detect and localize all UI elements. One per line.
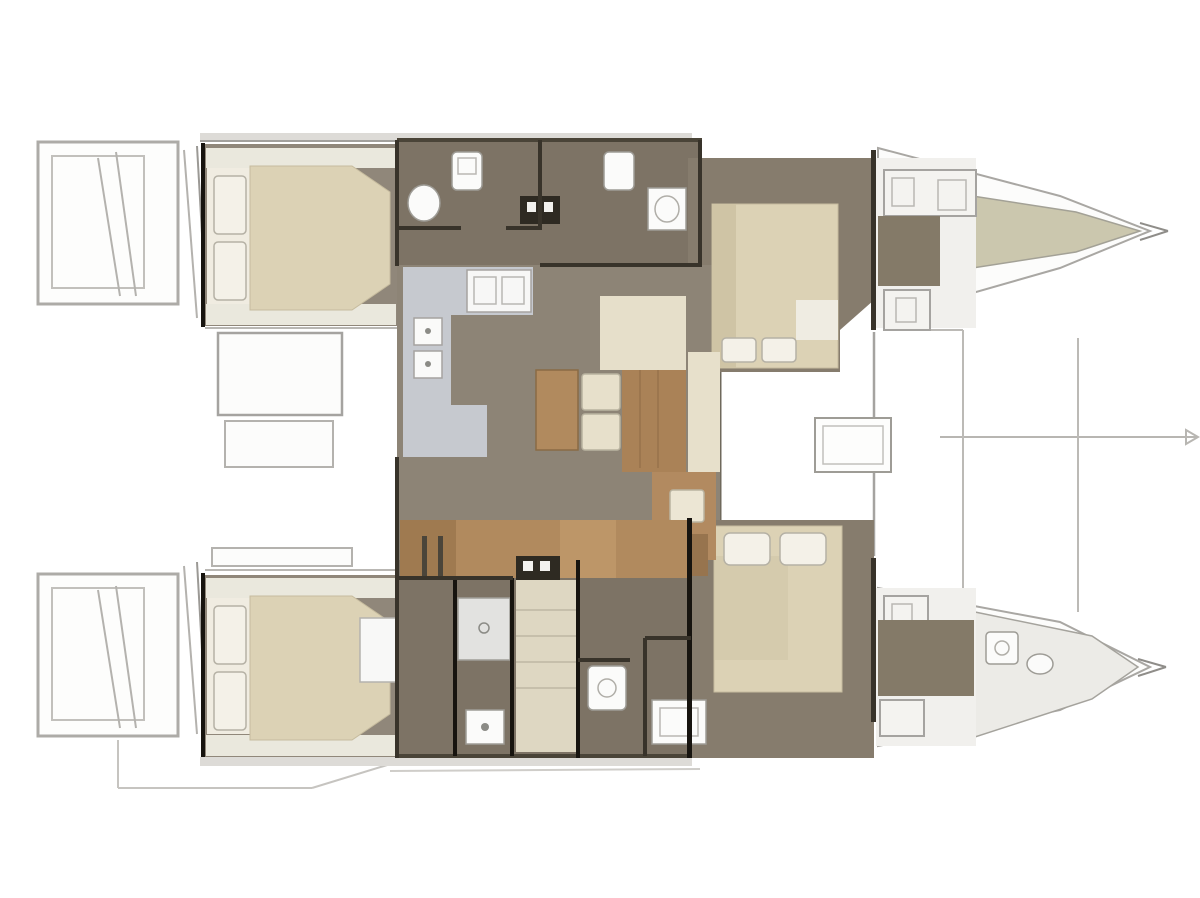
wall-shower-stbd-1 [453, 578, 457, 756]
toilet-stbd [588, 666, 626, 710]
wall-salon-aft [395, 457, 399, 561]
companionway-stairs-stbd [516, 580, 576, 752]
galley-aft-cabinet-dark [400, 520, 456, 578]
wall-heads-port-h3 [540, 263, 702, 267]
basin-port-fwd-cabinet [648, 188, 686, 230]
pillow-aft-stbd-1 [214, 606, 246, 664]
pillow-fwd-port-1 [722, 338, 756, 362]
wall-forepeak-stbd [871, 558, 876, 722]
galley-aft-cabinet-light [560, 520, 616, 578]
forepeak-stbd-hatch [880, 700, 924, 736]
wall-cabin-aft-port [201, 143, 205, 327]
crew-toilet [986, 632, 1018, 664]
hinge-fixture-port-dot-1 [527, 202, 536, 212]
galley-aft-faucet-1 [422, 536, 427, 576]
bed-aft-stbd-base-top [206, 578, 396, 598]
bow-stbd-deck [975, 612, 1138, 737]
wall-heads-stbd-h2 [645, 636, 691, 640]
bed-aft-port [250, 166, 390, 310]
forepeak-stbd-block [878, 620, 974, 696]
bed-fwd-stbd-dither [714, 556, 788, 660]
pillow-aft-stbd-2 [214, 672, 246, 730]
galley-aft-faucet-2 [438, 536, 443, 576]
bed-aft-port-base-top [206, 148, 396, 168]
wall-heads-stbd-left [395, 560, 399, 758]
forepeak-port-hatch [884, 290, 930, 330]
cockpit-table [218, 333, 342, 415]
salon-cabinet [622, 362, 686, 472]
galley-counter-bottom [403, 405, 487, 457]
salon-seat-top [600, 296, 686, 370]
dinette-chair-2 [582, 414, 620, 450]
pillow-aft-port-2 [214, 242, 246, 300]
transom-port-line-1 [184, 150, 197, 318]
forepeak-port-locker [884, 170, 976, 216]
cockpit-bench [225, 421, 333, 467]
wall-head-stbd-v [643, 638, 647, 756]
toilet-port-fwd [604, 152, 634, 190]
shower-tray-stbd [458, 598, 510, 660]
pillow-fwd-stbd-1 [724, 533, 770, 565]
hull-stbd-bottom-edge-band [200, 757, 692, 766]
galley-sink-drain-1 [425, 328, 431, 334]
bed-fwd-port-fold [796, 300, 838, 340]
forepeak-port-block [878, 216, 940, 286]
wall-heads-port-left [395, 140, 399, 266]
crew-basin [1027, 654, 1053, 674]
transom-stbd-line-1 [184, 566, 197, 734]
shower-seat-dot-stbd [481, 723, 489, 731]
galley-aft-sink-bowl-1 [523, 561, 533, 571]
cockpit-aft-bench [212, 548, 352, 566]
galley-aft-sink-fixture [516, 556, 560, 580]
wall-heads-stbd-h3 [578, 658, 630, 662]
pillow-fwd-port-2 [762, 338, 796, 362]
wall-top-heads-edge [397, 138, 702, 142]
hinge-fixture-port-dot-2 [544, 202, 553, 212]
wall-heads-port-h1 [397, 226, 461, 230]
catamaran-floorplan [0, 0, 1200, 898]
galley-aft-sink-bowl-2 [540, 561, 550, 571]
pillow-aft-port-1 [214, 176, 246, 234]
window-aft-stbd [360, 618, 396, 682]
dinette-table [536, 370, 578, 450]
floorplan-svg [0, 0, 1200, 898]
hull-stbd-under-line [390, 769, 700, 771]
wall-heads-stbd-h1 [397, 576, 513, 580]
dinette-chair-1 [582, 374, 620, 410]
wall-cabin-aft-stbd [201, 573, 205, 757]
wall-heads-port-h2 [506, 226, 540, 230]
wall-shower-stbd-2 [510, 578, 514, 756]
salon-stool [670, 490, 704, 522]
wall-forepeak-port [871, 150, 876, 330]
wall-heads-port-mid [538, 140, 542, 230]
pillow-fwd-stbd-2 [780, 533, 826, 565]
salon-sofa-band [688, 352, 720, 472]
basin-port-aft [408, 185, 440, 221]
galley-sink-drain-2 [425, 361, 431, 367]
wall-heads-port-right [698, 140, 702, 266]
